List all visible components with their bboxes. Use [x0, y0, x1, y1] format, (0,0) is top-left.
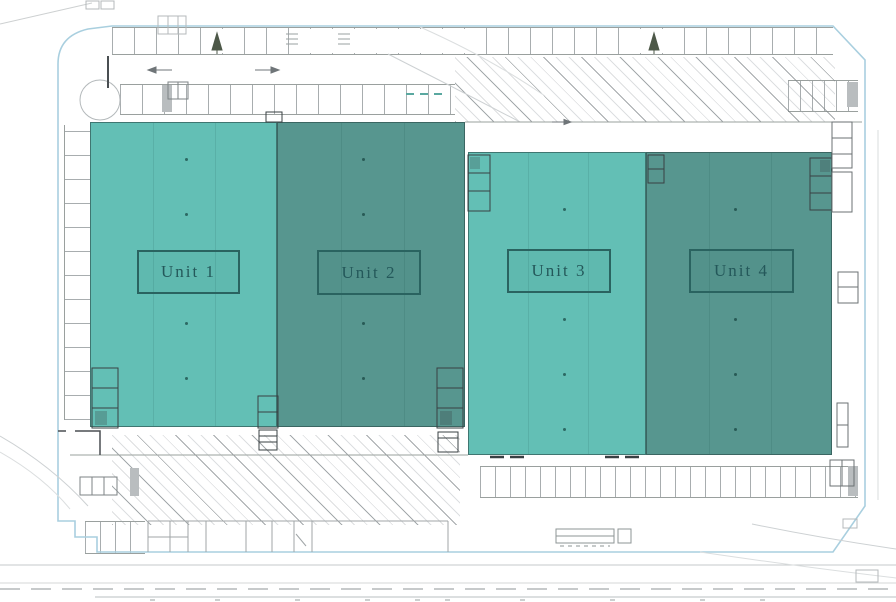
unit-2-label-box: Unit 2 [317, 250, 421, 295]
unit-1-label-box: Unit 1 [137, 250, 240, 294]
unit-3-label-box: Unit 3 [507, 249, 611, 293]
linework-over [0, 0, 896, 602]
side-room-details [830, 122, 858, 486]
unit-1-label: Unit 1 [161, 262, 216, 282]
unit-2-label: Unit 2 [342, 263, 397, 283]
unit-4-label-box: Unit 4 [689, 249, 794, 293]
unit-4-label: Unit 4 [714, 261, 769, 281]
site-plan-drawing: Unit 1 Unit 2 Unit 3 Unit 4 [0, 0, 896, 602]
unit-3-label: Unit 3 [532, 261, 587, 281]
